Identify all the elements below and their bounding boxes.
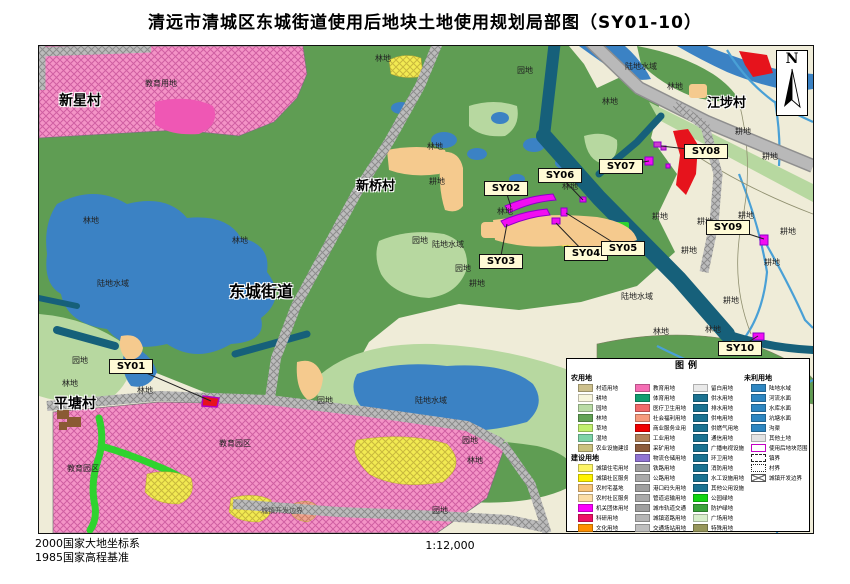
legend-swatch [578, 444, 593, 452]
legend-swatch [578, 524, 593, 532]
legend-item-label: 沟渠 [769, 424, 780, 432]
legend-item: 工业用地 [628, 433, 686, 443]
legend-swatch [751, 454, 766, 462]
legend-item-label: 公园绿地 [711, 494, 733, 502]
page-title: 清远市清城区东城街道使用后地块土地使用规划局部图（SY01-10） [0, 8, 850, 33]
legend-item-label: 广播电视设施用地 [711, 444, 744, 452]
legend-item-label: 交通场站用地 [653, 524, 686, 532]
legend-column: 未利用地陆地水域河流水面水库水面坑塘水面沟渠其他土地使用后地块范围镇界村界城镇开… [744, 373, 808, 533]
legend-swatch [635, 494, 650, 502]
planning-map-page: 清远市清城区东城街道使用后地块土地使用规划局部图（SY01-10） [0, 0, 850, 584]
legend-item: 草地 [571, 423, 628, 433]
legend-item: 消防用地 [686, 463, 744, 473]
legend-swatch [578, 474, 593, 482]
legend-swatch [635, 514, 650, 522]
legend-item: 村界 [744, 463, 808, 473]
legend-swatch [635, 504, 650, 512]
legend-item: 医疗卫生用地 [628, 403, 686, 413]
legend-item: 广播电视设施用地 [686, 443, 744, 453]
legend-item-label: 城镇社区服务设施用地 [596, 474, 628, 482]
legend-item: 使用后地块范围 [744, 443, 808, 453]
map-frame: 林地林地林地林地林地林地林地林地林地林地林地林地林地耕地耕地耕地耕地耕地耕地耕地… [38, 45, 814, 534]
legend-item-label: 耕地 [596, 394, 607, 402]
legend-item: 通信用地 [686, 433, 744, 443]
legend-item: 水工设施用地 [686, 473, 744, 483]
legend-item-label: 科研用地 [596, 514, 618, 522]
legend-item-label: 村道用地 [596, 384, 618, 392]
legend-item-label: 村界 [769, 464, 780, 472]
legend-item: 城镇住宅用地 [571, 463, 628, 473]
legend-item-label: 通信用地 [711, 434, 733, 442]
legend-item-label: 社会福利用地 [653, 414, 686, 422]
legend-item: 供电用地 [686, 413, 744, 423]
legend-item-label: 坑塘水面 [769, 414, 791, 422]
legend-swatch [693, 394, 708, 402]
legend-swatch [751, 414, 766, 422]
legend-swatch [751, 404, 766, 412]
legend-section-header: 建设用地 [571, 453, 628, 463]
legend-item-label: 农村社区服务设施用地 [596, 494, 628, 502]
legend-item-label: 公路用地 [653, 474, 675, 482]
legend-item: 特殊用地 [686, 523, 744, 533]
legend-item-label: 农业设施建设用地 [596, 444, 628, 452]
datum-line-2: 1985国家高程基准 [35, 551, 140, 565]
legend-item: 镇界 [744, 453, 808, 463]
legend-item-label: 商业服务业用地 [653, 424, 686, 432]
datum-line-1: 2000国家大地坐标系 [35, 537, 140, 551]
legend-item: 排水用地 [686, 403, 744, 413]
legend-item-label: 铁路用地 [653, 464, 675, 472]
legend-item-label: 使用后地块范围 [769, 444, 808, 452]
legend-item: 农村社区服务设施用地 [571, 493, 628, 503]
legend-swatch [635, 384, 650, 392]
legend-item: 交通场站用地 [628, 523, 686, 533]
legend-item: 公路用地 [628, 473, 686, 483]
legend-item: 耕地 [571, 393, 628, 403]
legend-item-label: 环卫用地 [711, 454, 733, 462]
legend-item: 农业设施建设用地 [571, 443, 628, 453]
legend-item: 村道用地 [571, 383, 628, 393]
legend-spacer [686, 373, 744, 383]
legend-item-label: 排水用地 [711, 404, 733, 412]
legend-swatch [693, 414, 708, 422]
legend-item-label: 留白用地 [711, 384, 733, 392]
north-label: N [786, 51, 799, 67]
legend-item-label: 城市轨道交通用地 [653, 504, 686, 512]
legend-item: 河流水面 [744, 393, 808, 403]
legend-swatch [693, 524, 708, 532]
legend: 图例 农用地村道用地耕地园地林地草地湿地农业设施建设用地建设用地城镇住宅用地城镇… [566, 358, 810, 532]
legend-swatch [693, 464, 708, 472]
legend-item: 供燃气用地 [686, 423, 744, 433]
legend-item-label: 镇界 [769, 454, 780, 462]
legend-swatch [635, 454, 650, 462]
legend-title: 图例 [567, 359, 809, 372]
legend-column: 教育用地体育用地医疗卫生用地社会福利用地商业服务业用地工业用地采矿用地物流仓储用… [628, 373, 686, 533]
legend-swatch [693, 474, 708, 482]
legend-item: 商业服务业用地 [628, 423, 686, 433]
legend-columns: 农用地村道用地耕地园地林地草地湿地农业设施建设用地建设用地城镇住宅用地城镇社区服… [567, 372, 809, 533]
legend-item: 社会福利用地 [628, 413, 686, 423]
legend-swatch [635, 484, 650, 492]
legend-item-label: 陆地水域 [769, 384, 791, 392]
legend-item-label: 医疗卫生用地 [653, 404, 686, 412]
legend-item: 采矿用地 [628, 443, 686, 453]
legend-item-label: 供电用地 [711, 414, 733, 422]
legend-swatch [693, 514, 708, 522]
legend-swatch [751, 444, 766, 452]
legend-section-header: 农用地 [571, 373, 628, 383]
legend-swatch [693, 384, 708, 392]
legend-item: 文化用地 [571, 523, 628, 533]
legend-swatch [635, 464, 650, 472]
legend-swatch [635, 414, 650, 422]
legend-item: 坑塘水面 [744, 413, 808, 423]
legend-swatch [751, 464, 766, 472]
legend-item: 城市轨道交通用地 [628, 503, 686, 513]
legend-swatch [751, 434, 766, 442]
legend-item-label: 消防用地 [711, 464, 733, 472]
legend-item-label: 文化用地 [596, 524, 618, 532]
legend-item-label: 河流水面 [769, 394, 791, 402]
legend-item-label: 湿地 [596, 434, 607, 442]
legend-item: 城镇道路用地 [628, 513, 686, 523]
legend-item-label: 防护绿地 [711, 504, 733, 512]
legend-item-label: 采矿用地 [653, 444, 675, 452]
legend-item: 体育用地 [628, 393, 686, 403]
legend-item: 环卫用地 [686, 453, 744, 463]
legend-item-label: 农村宅基地 [596, 484, 624, 492]
legend-item: 教育用地 [628, 383, 686, 393]
legend-section-header: 未利用地 [744, 373, 808, 383]
legend-swatch [751, 424, 766, 432]
legend-item-label: 其他公用设施用地 [711, 484, 744, 492]
legend-item-label: 水库水面 [769, 404, 791, 412]
legend-item-label: 特殊用地 [711, 524, 733, 532]
legend-swatch [635, 524, 650, 532]
legend-item-label: 草地 [596, 424, 607, 432]
legend-item: 防护绿地 [686, 503, 744, 513]
legend-item-label: 城镇开发边界 [769, 474, 802, 482]
legend-swatch [578, 414, 593, 422]
legend-item-label: 机关团体用地 [596, 504, 628, 512]
legend-swatch [751, 384, 766, 392]
legend-item: 城镇开发边界 [744, 473, 808, 483]
legend-swatch [635, 444, 650, 452]
legend-item-label: 管道运输用地 [653, 494, 686, 502]
legend-item-label: 城镇道路用地 [653, 514, 686, 522]
legend-item-label: 广场用地 [711, 514, 733, 522]
legend-swatch [578, 514, 593, 522]
legend-item: 陆地水域 [744, 383, 808, 393]
legend-item-label: 体育用地 [653, 394, 675, 402]
legend-item: 其他土地 [744, 433, 808, 443]
legend-swatch [635, 474, 650, 482]
legend-item-label: 园地 [596, 404, 607, 412]
datum-note: 2000国家大地坐标系 1985国家高程基准 [35, 537, 140, 565]
legend-item-label: 林地 [596, 414, 607, 422]
legend-swatch [578, 464, 593, 472]
legend-item-label: 其他土地 [769, 434, 791, 442]
legend-item-label: 供燃气用地 [711, 424, 739, 432]
legend-item: 公园绿地 [686, 493, 744, 503]
legend-item-label: 物流仓储用地 [653, 454, 686, 462]
legend-swatch [635, 434, 650, 442]
legend-swatch [578, 494, 593, 502]
legend-item: 沟渠 [744, 423, 808, 433]
legend-item-label: 工业用地 [653, 434, 675, 442]
legend-swatch [693, 424, 708, 432]
legend-item: 广场用地 [686, 513, 744, 523]
legend-item: 林地 [571, 413, 628, 423]
legend-column: 留白用地供水用地排水用地供电用地供燃气用地通信用地广播电视设施用地环卫用地消防用… [686, 373, 744, 533]
legend-item: 管道运输用地 [628, 493, 686, 503]
legend-item: 留白用地 [686, 383, 744, 393]
legend-item: 城镇社区服务设施用地 [571, 473, 628, 483]
legend-swatch [578, 394, 593, 402]
legend-item: 湿地 [571, 433, 628, 443]
legend-item: 其他公用设施用地 [686, 483, 744, 493]
legend-swatch [635, 424, 650, 432]
legend-item-label: 城镇住宅用地 [596, 464, 628, 472]
legend-item: 物流仓储用地 [628, 453, 686, 463]
legend-column: 农用地村道用地耕地园地林地草地湿地农业设施建设用地建设用地城镇住宅用地城镇社区服… [571, 373, 628, 533]
legend-item-label: 港口码头用地 [653, 484, 686, 492]
legend-swatch [578, 504, 593, 512]
legend-swatch [578, 404, 593, 412]
legend-swatch [693, 404, 708, 412]
legend-item-label: 供水用地 [711, 394, 733, 402]
legend-swatch [578, 384, 593, 392]
legend-swatch [693, 444, 708, 452]
legend-swatch [693, 454, 708, 462]
legend-item: 港口码头用地 [628, 483, 686, 493]
legend-item: 机关团体用地 [571, 503, 628, 513]
legend-item-label: 水工设施用地 [711, 474, 744, 482]
legend-swatch [693, 484, 708, 492]
legend-item: 水库水面 [744, 403, 808, 413]
legend-swatch [578, 434, 593, 442]
legend-swatch [751, 394, 766, 402]
north-arrow: N [776, 50, 808, 116]
legend-spacer [628, 373, 686, 383]
legend-swatch [751, 474, 766, 482]
legend-swatch [578, 484, 593, 492]
legend-swatch [693, 434, 708, 442]
legend-item: 铁路用地 [628, 463, 686, 473]
legend-item: 农村宅基地 [571, 483, 628, 493]
legend-item: 科研用地 [571, 513, 628, 523]
legend-swatch [693, 504, 708, 512]
compass-needle-icon [781, 67, 803, 111]
legend-item: 园地 [571, 403, 628, 413]
legend-swatch [635, 404, 650, 412]
legend-swatch [635, 394, 650, 402]
legend-item-label: 教育用地 [653, 384, 675, 392]
legend-swatch [578, 424, 593, 432]
scale-text: 1:12,000 [390, 539, 510, 552]
legend-swatch [693, 494, 708, 502]
legend-item: 供水用地 [686, 393, 744, 403]
